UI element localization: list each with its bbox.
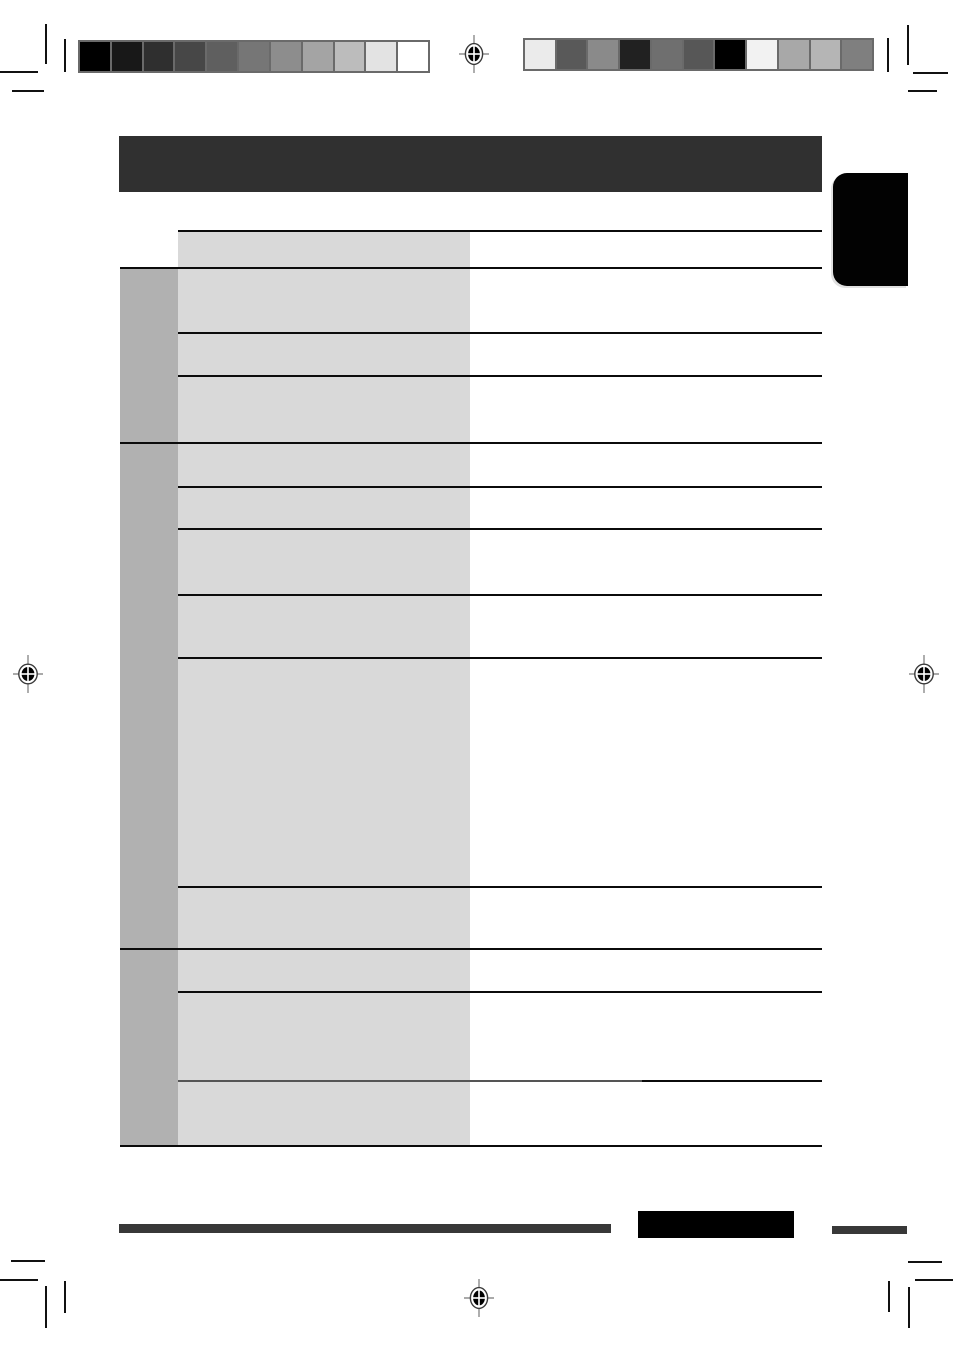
spec-table <box>0 0 953 1352</box>
table-rule <box>178 528 822 530</box>
table-rule <box>120 1145 822 1147</box>
table-section-column <box>120 268 178 1146</box>
table-rule <box>178 1080 642 1082</box>
table-rule <box>178 594 822 596</box>
table-item-column <box>178 231 470 1146</box>
table-rule <box>178 486 822 488</box>
table-rule <box>178 375 822 377</box>
footer-rule-left <box>119 1224 611 1233</box>
table-rule <box>178 332 822 334</box>
scanned-page <box>0 0 953 1352</box>
table-rule <box>642 1080 822 1082</box>
table-rule <box>178 230 822 232</box>
footer-label-box <box>638 1211 794 1238</box>
table-rule <box>120 442 822 444</box>
footer-rule-right <box>832 1226 907 1234</box>
table-rule <box>178 991 822 993</box>
table-rule <box>178 886 822 888</box>
table-rule <box>120 267 822 269</box>
table-rule <box>178 657 822 659</box>
table-rule <box>120 948 822 950</box>
